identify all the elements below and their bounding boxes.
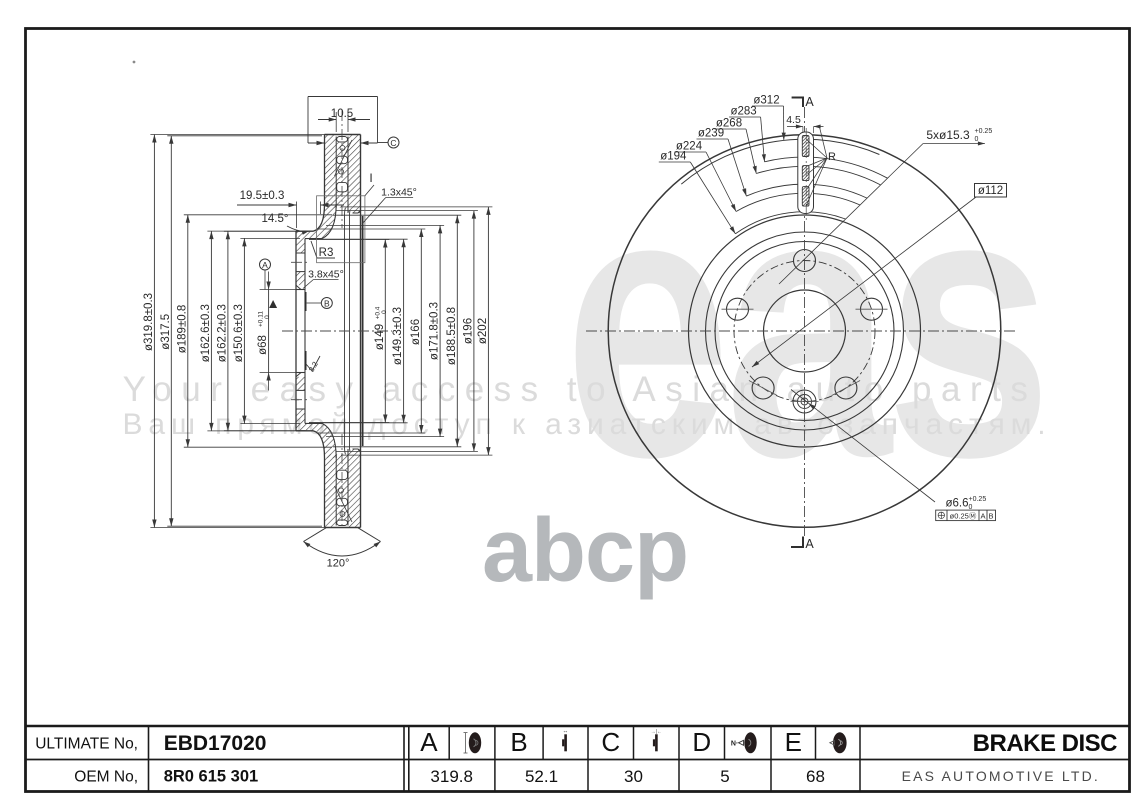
svg-text:ø162.6±0.3: ø162.6±0.3 — [200, 304, 212, 362]
svg-text:ø149: ø149 — [374, 324, 386, 350]
svg-text:3.8x45°: 3.8x45° — [308, 269, 344, 281]
svg-text:ø317.5: ø317.5 — [160, 314, 172, 350]
svg-text:ø6.6: ø6.6 — [945, 498, 968, 510]
svg-text:0: 0 — [264, 315, 271, 319]
svg-text:ø162.2±0.3: ø162.2±0.3 — [216, 304, 228, 362]
svg-text:A: A — [980, 511, 985, 520]
svg-text:abcp: abcp — [482, 501, 688, 601]
svg-text:ø68: ø68 — [257, 335, 269, 355]
svg-text:I: I — [369, 171, 372, 185]
svg-text:ø319.8±0.3: ø319.8±0.3 — [143, 293, 155, 351]
svg-text:BRAKE DISC: BRAKE DISC — [973, 730, 1118, 757]
svg-text:ø112: ø112 — [978, 185, 1003, 197]
svg-text:C: C — [390, 138, 396, 148]
svg-text:B: B — [324, 299, 330, 309]
svg-text:B: B — [510, 727, 527, 757]
svg-text:319.8: 319.8 — [430, 767, 473, 786]
svg-text:ø202: ø202 — [477, 318, 489, 344]
svg-text:N·: N· — [731, 740, 738, 747]
svg-text:120°: 120° — [327, 558, 350, 570]
svg-text:B: B — [988, 511, 993, 520]
svg-text:→|←: →|← — [651, 729, 662, 735]
svg-text:10.5: 10.5 — [331, 108, 353, 120]
svg-text:5: 5 — [720, 767, 729, 786]
svg-text:+0.25: +0.25 — [969, 496, 987, 503]
svg-text:ø189±0.8: ø189±0.8 — [176, 305, 188, 354]
svg-text:0: 0 — [381, 310, 388, 314]
svg-text:D: D — [692, 727, 711, 757]
svg-text:↔: ↔ — [563, 728, 569, 734]
svg-text:ø150.6±0.3: ø150.6±0.3 — [233, 304, 245, 362]
svg-text:52.1: 52.1 — [525, 767, 558, 786]
svg-text:4.5: 4.5 — [786, 114, 801, 126]
svg-text:19.5±0.3: 19.5±0.3 — [240, 190, 285, 202]
svg-text:68: 68 — [806, 767, 825, 786]
svg-text:ULTIMATE No,: ULTIMATE No, — [35, 736, 138, 753]
svg-text:ø166: ø166 — [410, 319, 422, 345]
svg-text:C: C — [601, 727, 620, 757]
svg-text:1.3x45°: 1.3x45° — [381, 187, 417, 199]
svg-text:ø188.5±0.8: ø188.5±0.8 — [446, 307, 458, 365]
svg-text:ø149.3±0.3: ø149.3±0.3 — [392, 307, 404, 365]
svg-text:R: R — [828, 151, 836, 163]
svg-text:ø196: ø196 — [462, 318, 474, 344]
svg-text:OEM No,: OEM No, — [74, 769, 138, 786]
svg-text:30: 30 — [624, 767, 643, 786]
svg-text:A: A — [262, 260, 268, 270]
svg-text:ø171.8±0.3: ø171.8±0.3 — [429, 302, 441, 360]
svg-text:5xø15.3: 5xø15.3 — [926, 128, 970, 142]
svg-text:A: A — [805, 95, 814, 109]
svg-text:ø283: ø283 — [730, 106, 756, 118]
svg-text:ø239: ø239 — [698, 128, 724, 140]
svg-text:+0.25: +0.25 — [975, 128, 993, 135]
svg-text:A: A — [805, 537, 814, 551]
svg-text:EAS AUTOMOTIVE LTD.: EAS AUTOMOTIVE LTD. — [902, 768, 1100, 784]
svg-text:8R0 615 301: 8R0 615 301 — [164, 768, 259, 786]
svg-text:ø0.25Ⓜ: ø0.25Ⓜ — [950, 511, 977, 520]
svg-text:ø194: ø194 — [660, 151, 687, 163]
svg-text:A: A — [420, 727, 438, 757]
svg-text:Your easy access to Asian auto: Your easy access to Asian auto parts — [123, 370, 1038, 409]
svg-text:EBD17020: EBD17020 — [164, 732, 267, 755]
svg-text:ø312: ø312 — [753, 95, 779, 107]
svg-text:E: E — [785, 727, 802, 757]
svg-text:Ваш прямой доступ к азиатским: Ваш прямой доступ к азиатским автозапчас… — [122, 408, 1051, 441]
svg-text:R3: R3 — [319, 247, 334, 259]
svg-text:14.5°: 14.5° — [262, 213, 289, 225]
